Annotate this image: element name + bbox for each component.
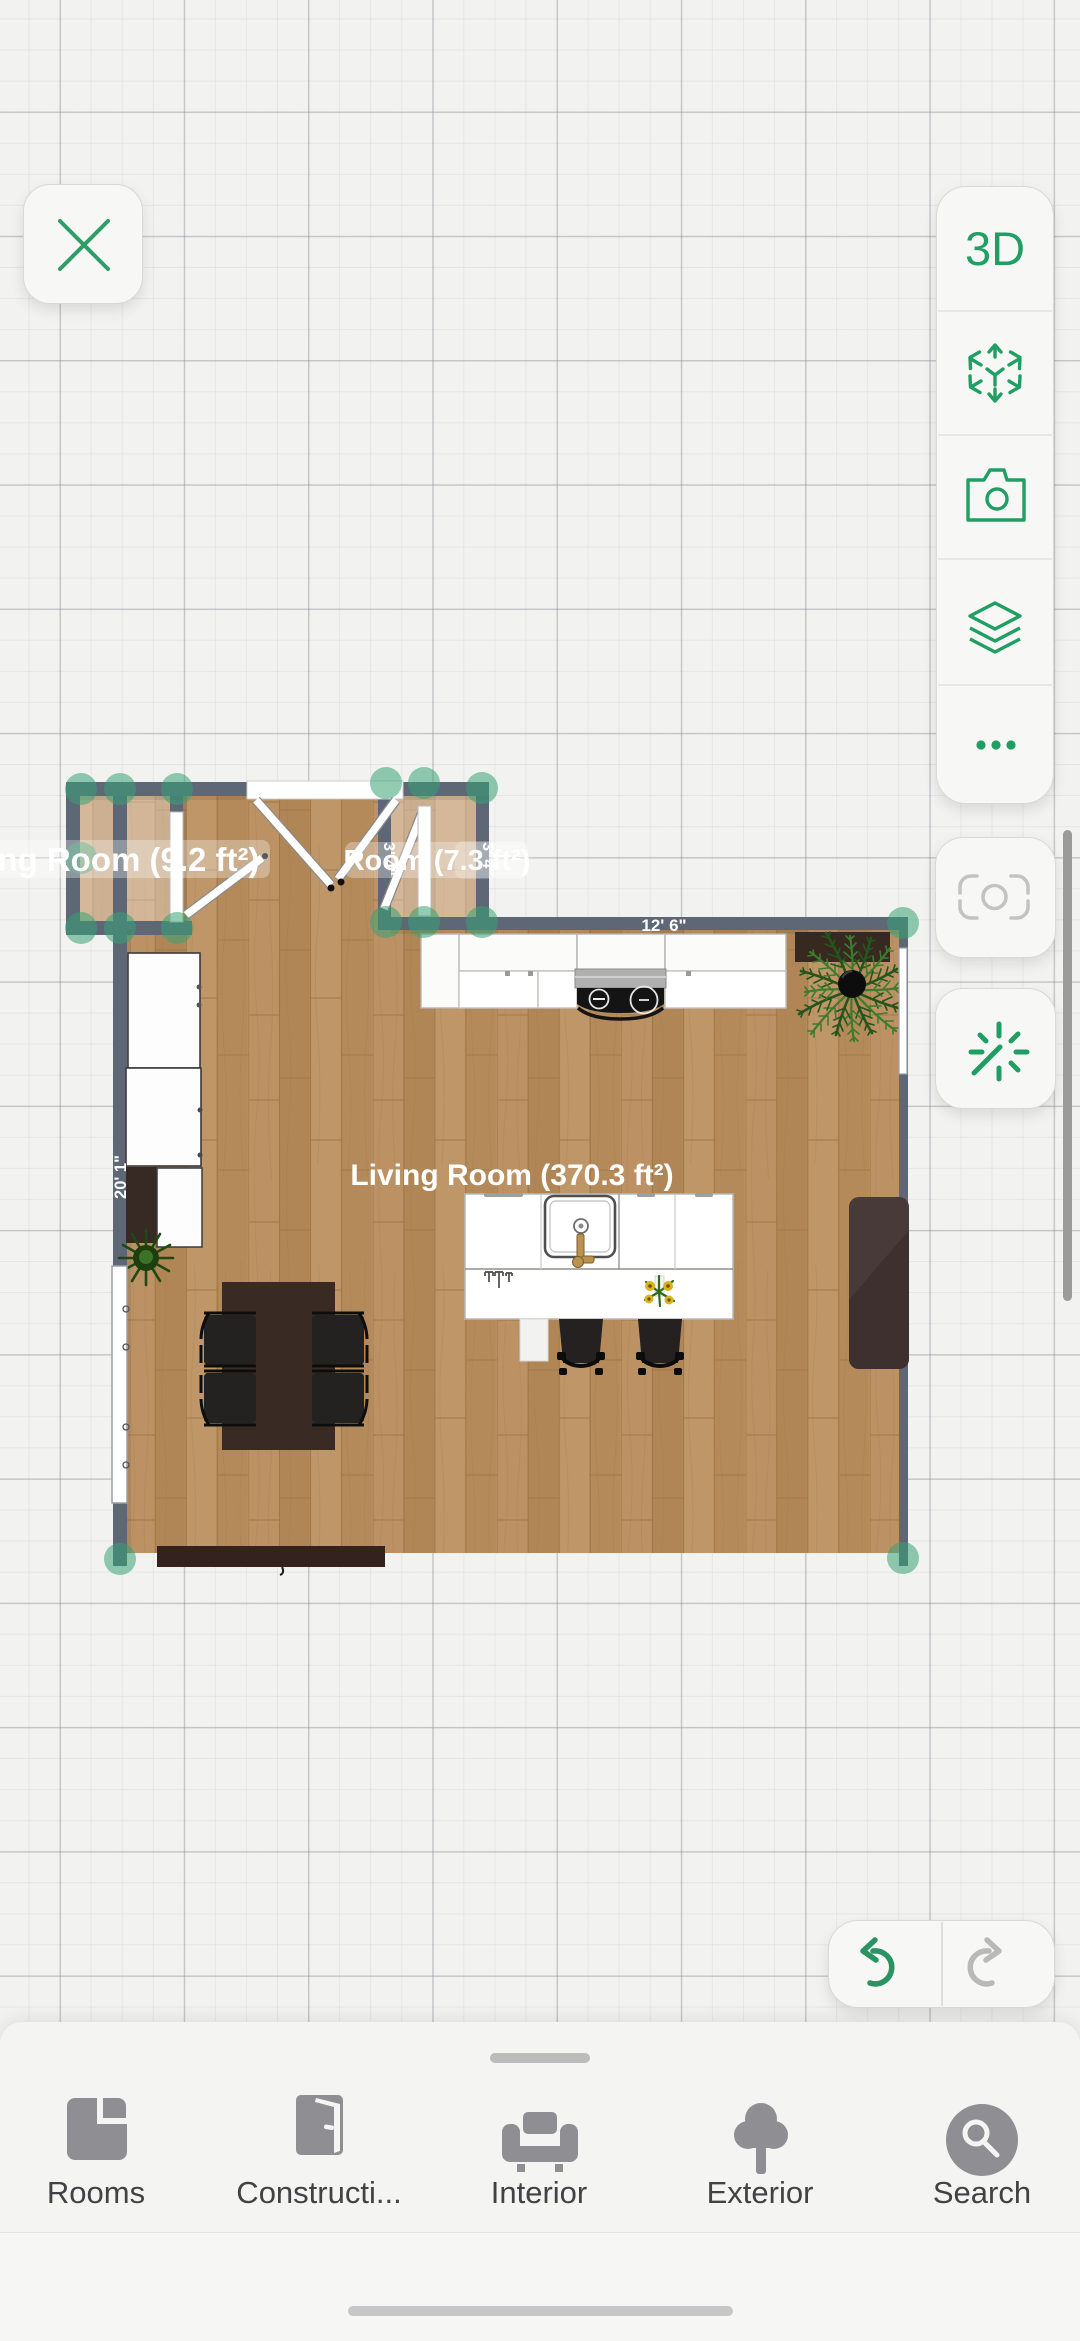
svg-text:Room (7.3 ft²): Room (7.3 ft²) [344, 845, 531, 877]
svg-text:20' 1": 20' 1" [112, 1155, 130, 1199]
svg-text:3D: 3D [965, 222, 1025, 275]
svg-text:Living Room (9.2 ft²): Living Room (9.2 ft²) [0, 841, 259, 878]
svg-text:12' 6": 12' 6" [641, 916, 686, 935]
svg-text:3' 4": 3' 4" [380, 842, 397, 876]
svg-text:3' 4": 3' 4" [479, 842, 496, 876]
svg-text:Living Room (370.3 ft²): Living Room (370.3 ft²) [350, 1159, 673, 1192]
